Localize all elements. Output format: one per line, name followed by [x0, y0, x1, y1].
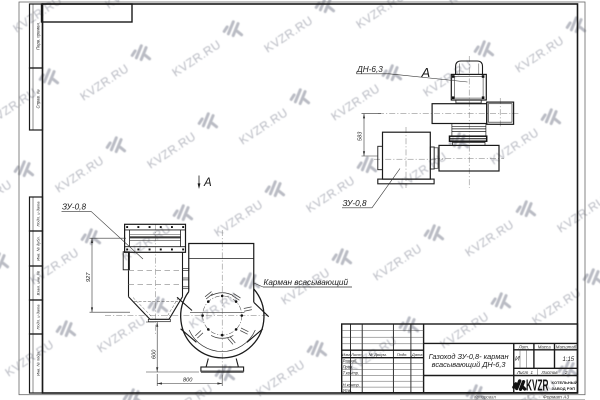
svg-text:Масштаб: Масштаб	[556, 344, 577, 349]
svg-text:ЗАВОД РЭП: ЗАВОД РЭП	[552, 386, 576, 391]
svg-text:ЗУ-0,8: ЗУ-0,8	[62, 203, 86, 212]
svg-text:Утв.: Утв.	[343, 388, 352, 393]
svg-text:600: 600	[151, 349, 157, 359]
svg-text:2: 2	[564, 370, 568, 375]
svg-text:Листов: Листов	[541, 370, 559, 375]
svg-text:Инв. № дубл.: Инв. № дубл.	[36, 236, 41, 261]
svg-text:Карман всасывающий: Карман всасывающий	[264, 278, 349, 287]
svg-text:927: 927	[86, 272, 92, 282]
svg-text:583: 583	[358, 131, 364, 141]
svg-text:Лист: Лист	[350, 352, 362, 357]
svg-text:1:15: 1:15	[562, 357, 574, 363]
svg-text:ЗУ-0,8: ЗУ-0,8	[343, 199, 367, 208]
svg-text:Перв. примен.: Перв. примен.	[36, 22, 41, 50]
svg-text:Подп. и дата: Подп. и дата	[36, 304, 41, 330]
svg-text:Формат А3: Формат А3	[543, 395, 570, 400]
svg-text:Справ. №: Справ. №	[36, 89, 41, 108]
svg-text:Н.контр.: Н.контр.	[343, 382, 360, 387]
svg-text:А: А	[203, 177, 212, 189]
svg-text:Подп. и дата: Подп. и дата	[36, 201, 41, 227]
svg-text:Копировал: Копировал	[474, 395, 496, 400]
svg-text:Т.контр.: Т.контр.	[343, 371, 360, 376]
svg-text:Взам. инв. №: Взам. инв. №	[36, 270, 41, 295]
svg-text:Дата: Дата	[411, 352, 423, 357]
svg-text:КОТЕЛЬНЫЙ: КОТЕЛЬНЫЙ	[552, 380, 578, 385]
svg-text:№ Докум.: № Докум.	[369, 352, 387, 357]
svg-text:Лист: Лист	[516, 370, 529, 375]
svg-text:Лит.: Лит.	[518, 344, 529, 349]
svg-text:всасывающий ДН-6,3: всасывающий ДН-6,3	[432, 360, 507, 369]
svg-text:Инв. № подл.: Инв. № подл.	[36, 351, 41, 376]
svg-text:KVZR: KVZR	[526, 378, 549, 395]
svg-text:800: 800	[183, 378, 193, 384]
svg-text:Масса: Масса	[538, 344, 552, 349]
svg-text:Изм: Изм	[342, 352, 350, 357]
svg-text:ДН-6,3: ДН-6,3	[356, 65, 383, 74]
svg-text:Пров.: Пров.	[343, 365, 354, 370]
svg-text:И: И	[515, 356, 520, 363]
svg-text:Разраб.: Разраб.	[343, 359, 358, 364]
svg-text:Подп.: Подп.	[397, 352, 408, 357]
